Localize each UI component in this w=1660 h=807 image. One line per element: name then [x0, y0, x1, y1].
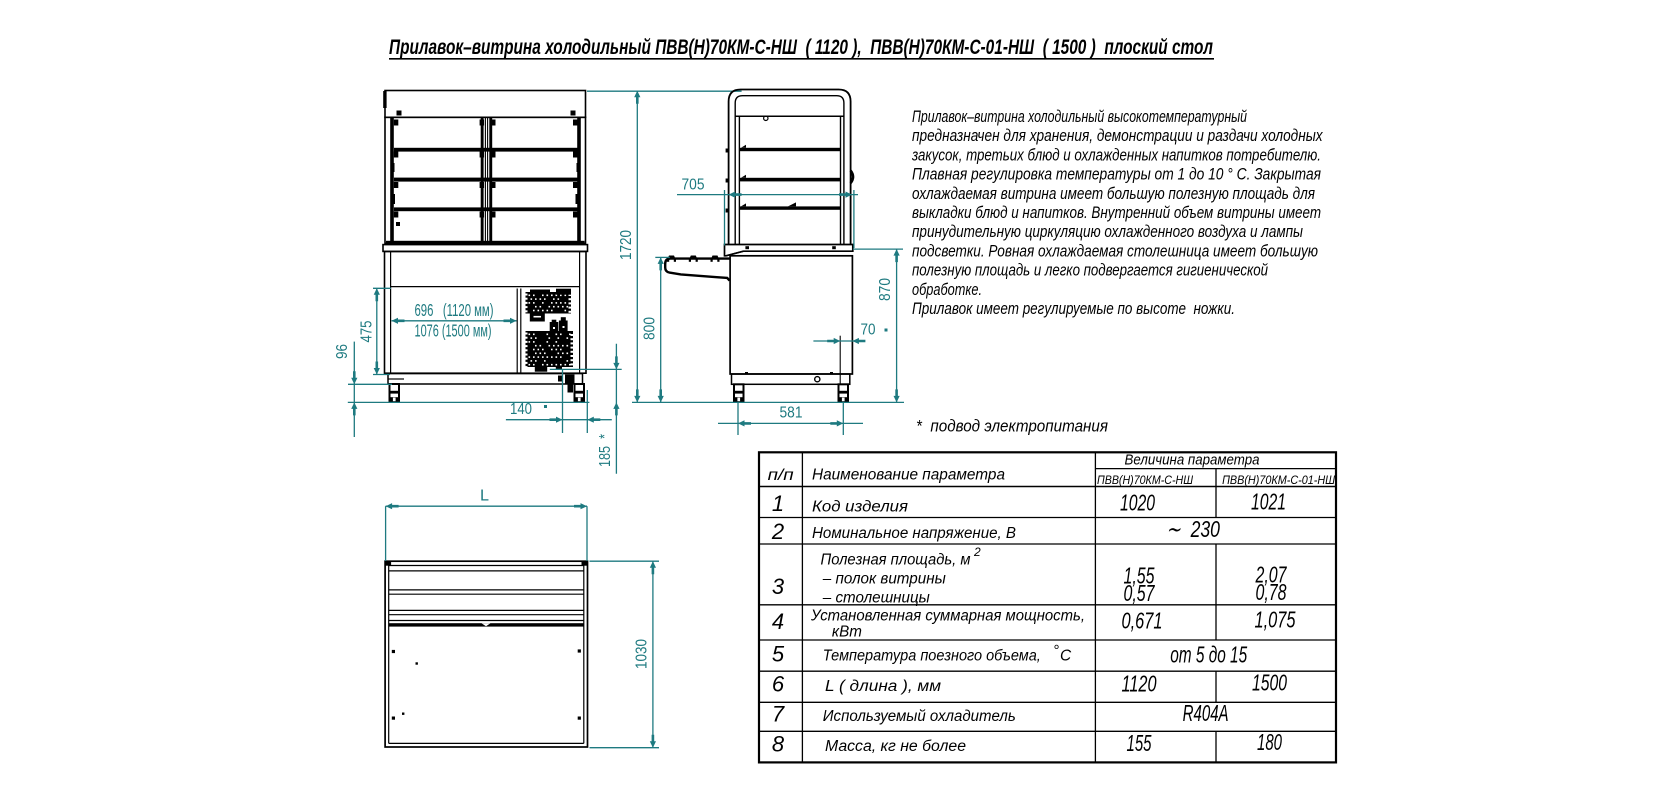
svg-text:800: 800 [642, 317, 659, 340]
svg-text:475: 475 [359, 321, 376, 343]
svg-text:– полок витрины: – полок витрины [822, 571, 947, 588]
svg-text:70: 70 [861, 322, 876, 339]
svg-text:1076 (1500 мм): 1076 (1500 мм) [415, 320, 492, 340]
svg-text:закусок, третьих блюд и охлажд: закусок, третьих блюд и охлажденных напи… [911, 146, 1321, 164]
svg-text:8: 8 [772, 732, 785, 757]
svg-text:полезную площадь и легко подве: полезную площадь и легко подвергается ги… [912, 262, 1268, 280]
svg-text:п/п: п/п [768, 467, 794, 484]
svg-text:от 5 до 15: от 5 до 15 [1170, 642, 1247, 668]
svg-text:Величина параметра: Величина параметра [1125, 452, 1260, 469]
svg-text:1120: 1120 [1122, 671, 1157, 697]
svg-text:ПВВ(Н)70КМ-С-01-НШ: ПВВ(Н)70КМ-С-01-НШ [1222, 473, 1336, 487]
svg-text:подсветки. Ровная охлаждаемая: подсветки. Ровная охлаждаемая столешница… [912, 242, 1318, 260]
svg-text:155: 155 [1127, 730, 1152, 756]
svg-text:принудительную циркуляцию охла: принудительную циркуляцию охлажденного в… [912, 223, 1303, 241]
svg-text:кВт: кВт [832, 624, 862, 641]
svg-text:1020: 1020 [1120, 489, 1155, 515]
svg-text:Прилавок имеет регулируемые по: Прилавок имеет регулируемые по высоте но… [912, 300, 1235, 318]
svg-text:1021: 1021 [1251, 488, 1286, 514]
svg-text:Номинальное напряжение, В: Номинальное напряжение, В [812, 525, 1016, 542]
svg-text:870: 870 [877, 278, 894, 301]
svg-text:185 *: 185 * [597, 434, 614, 467]
svg-text:Прилавок–витрина холодильный в: Прилавок–витрина холодильный высокотемпе… [912, 108, 1247, 126]
svg-text:ПВВ(Н)70КМ-С-НШ: ПВВ(Н)70КМ-С-НШ [1097, 473, 1194, 487]
svg-text:выкладки блюд и напитков. Внут: выкладки блюд и напитков. Внутренний объ… [912, 204, 1321, 222]
svg-text:* подвод электропитания: * подвод электропитания [916, 417, 1108, 436]
svg-text:5: 5 [772, 642, 785, 667]
svg-text:L: L [480, 488, 489, 505]
svg-text:1: 1 [772, 491, 784, 516]
svg-text:°: ° [1053, 642, 1059, 659]
svg-text:3: 3 [772, 574, 785, 599]
svg-text:1720: 1720 [618, 230, 635, 260]
svg-text:6: 6 [772, 672, 785, 697]
svg-text:1,075: 1,075 [1255, 607, 1296, 633]
svg-text:1500: 1500 [1252, 670, 1287, 696]
svg-text:96: 96 [334, 344, 351, 359]
svg-text:Масса, кг не более: Масса, кг не более [825, 738, 966, 755]
svg-text:140: 140 [510, 401, 532, 418]
svg-text:Плавная регулировка температур: Плавная регулировка температуры от 1 до … [912, 166, 1321, 184]
svg-text:обработке.: обработке. [912, 281, 982, 299]
svg-text:0,78: 0,78 [1256, 579, 1287, 605]
svg-text:Код изделия: Код изделия [812, 498, 908, 515]
svg-text:2: 2 [973, 545, 981, 559]
svg-text:0,57: 0,57 [1124, 580, 1156, 606]
svg-text:4: 4 [772, 609, 784, 634]
svg-text:2: 2 [771, 519, 784, 544]
svg-text:581: 581 [780, 405, 803, 422]
svg-text:Наименование параметра: Наименование параметра [812, 466, 1005, 483]
svg-text:С: С [1060, 647, 1072, 664]
svg-text:∼ 230: ∼ 230 [1166, 516, 1220, 542]
svg-text:0,671: 0,671 [1122, 608, 1163, 634]
svg-text:R404A: R404A [1183, 700, 1229, 726]
svg-text:696 (1120 мм): 696 (1120 мм) [415, 300, 494, 320]
svg-text:L ( длина ), мм: L ( длина ), мм [825, 678, 941, 695]
svg-text:– столешницы: – столешницы [822, 590, 931, 607]
svg-text:1030: 1030 [634, 639, 651, 669]
svg-text:Используемый охладитель: Используемый охладитель [823, 708, 1016, 725]
svg-text:Полезная площадь, м: Полезная площадь, м [821, 551, 971, 568]
svg-text:охлаждаемая витрина имеет боль: охлаждаемая витрина имеет большую полезн… [912, 185, 1315, 203]
svg-text:7: 7 [772, 702, 785, 727]
svg-text:Установленная суммарная мощнос: Установленная суммарная мощность, [810, 608, 1085, 625]
svg-text:180: 180 [1257, 729, 1282, 755]
svg-text:Температура поезного объема,: Температура поезного объема, [823, 647, 1041, 664]
svg-text:705: 705 [682, 177, 705, 194]
svg-text:Прилавок–витрина холодильный П: Прилавок–витрина холодильный ПВВ(Н)70КМ-… [389, 36, 1213, 59]
svg-text:предназначен для хранения, дем: предназначен для хранения, демонстрации … [912, 127, 1323, 145]
